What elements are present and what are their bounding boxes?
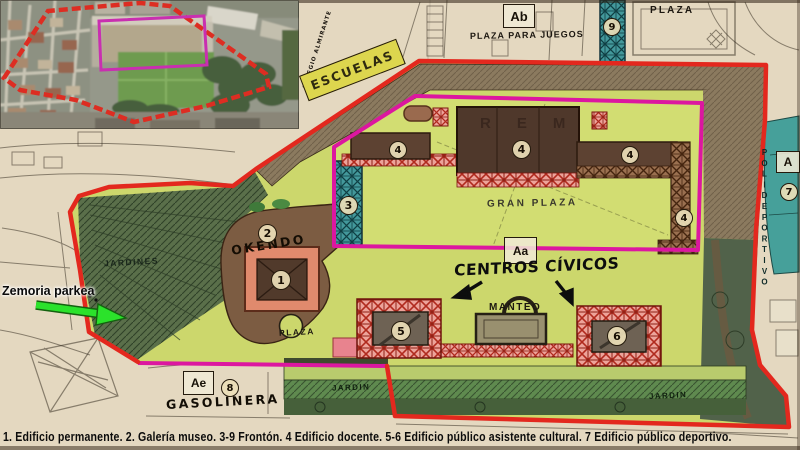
marker-9: 9 xyxy=(603,18,621,36)
legend-caption: 1. Edificio permanente. 2. Galería museo… xyxy=(3,430,732,444)
marker-4-west: 4 xyxy=(389,141,407,159)
label-plaza-small: PLAZA xyxy=(279,327,315,337)
marker-1: 1 xyxy=(271,270,291,290)
marker-4-east: 4 xyxy=(621,146,639,164)
marker-4-column: 4 xyxy=(675,209,693,227)
marker-5: 5 xyxy=(391,321,411,341)
zemoria-annotation: Zemoria parkea xyxy=(2,285,94,298)
aerial-photo-inset xyxy=(0,0,300,129)
label-manteo: MANTEO xyxy=(489,303,541,313)
marker-6: 6 xyxy=(607,326,627,346)
zone-box-ae: Ae xyxy=(183,371,214,395)
label-gran-plaza: GRAN PLAZA xyxy=(487,198,578,210)
photo-bottom-edge xyxy=(0,446,800,450)
marker-3: 3 xyxy=(339,196,358,215)
manteo-building xyxy=(476,314,546,344)
photo-top-edge xyxy=(299,0,800,3)
label-plaza-top: PLAZA xyxy=(650,6,694,16)
marker-2: 2 xyxy=(258,224,277,243)
label-rem: REM xyxy=(480,116,591,131)
plan-map-canvas: PLAZA Ab PLAZA PARA JUEGOS COLEGIO ALMIR… xyxy=(0,0,800,450)
label-jardin-left: JARDIN xyxy=(332,383,370,392)
marker-4-center: 4 xyxy=(512,140,531,159)
zone-box-a: A xyxy=(776,151,800,173)
label-polideportivo: POLIDEPORTIVO xyxy=(760,148,768,288)
marker-8: 8 xyxy=(221,379,239,397)
building-4-column xyxy=(671,142,690,252)
marker-7: 7 xyxy=(780,183,798,201)
zone-box-ab: Ab xyxy=(503,4,535,28)
